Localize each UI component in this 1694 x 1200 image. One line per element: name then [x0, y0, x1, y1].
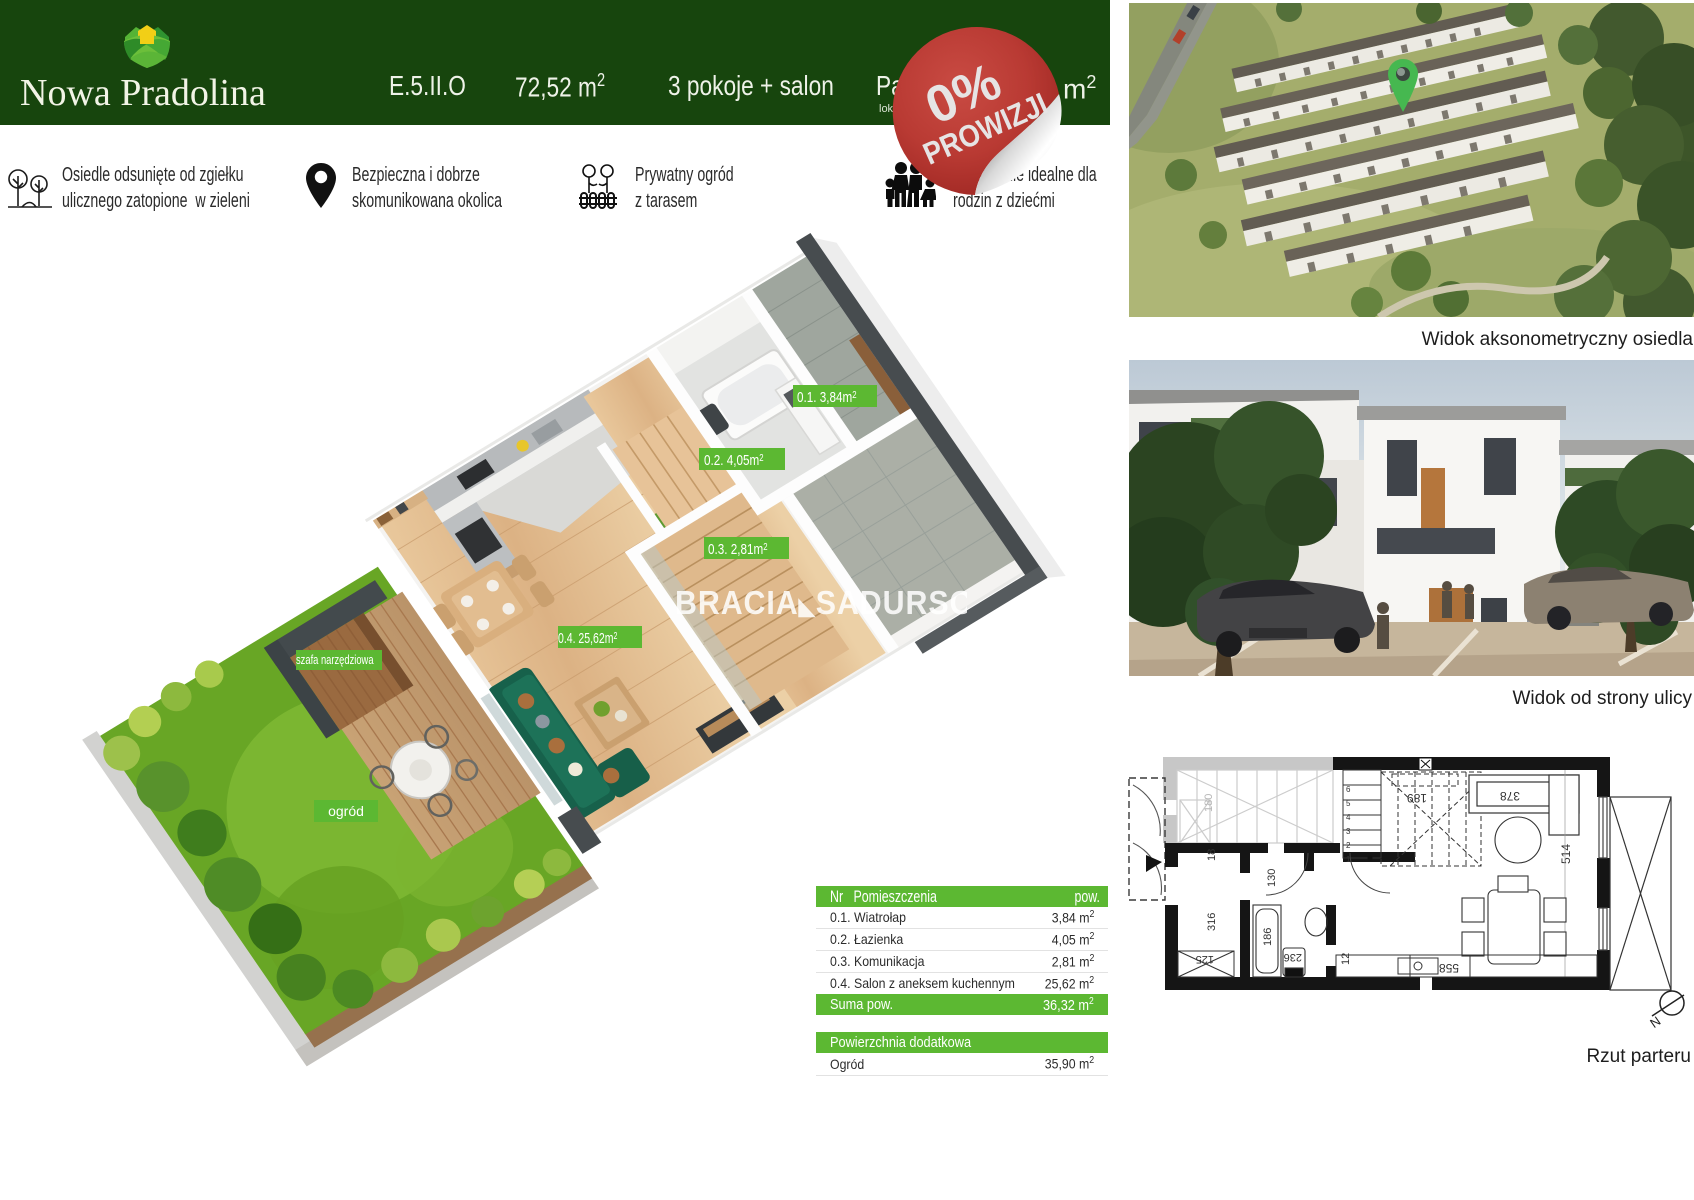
svg-text:2: 2 — [1346, 841, 1351, 850]
svg-text:558: 558 — [1439, 961, 1459, 975]
svg-text:130: 130 — [1266, 869, 1278, 887]
svg-text:186: 186 — [1262, 928, 1274, 946]
svg-text:4: 4 — [1346, 813, 1351, 822]
svg-text:378: 378 — [1500, 789, 1520, 803]
svg-text:N: N — [1647, 1013, 1663, 1031]
svg-text:5: 5 — [1346, 799, 1351, 808]
svg-text:514: 514 — [1559, 844, 1573, 864]
svg-text:6: 6 — [1346, 785, 1351, 794]
svg-text:3: 3 — [1346, 827, 1351, 836]
svg-text:236: 236 — [1284, 951, 1302, 963]
svg-text:316: 316 — [1206, 913, 1218, 931]
svg-text:18: 18 — [1206, 849, 1218, 861]
svg-text:180: 180 — [1203, 794, 1215, 812]
svg-text:12: 12 — [1340, 953, 1352, 965]
svg-text:189: 189 — [1407, 791, 1427, 805]
